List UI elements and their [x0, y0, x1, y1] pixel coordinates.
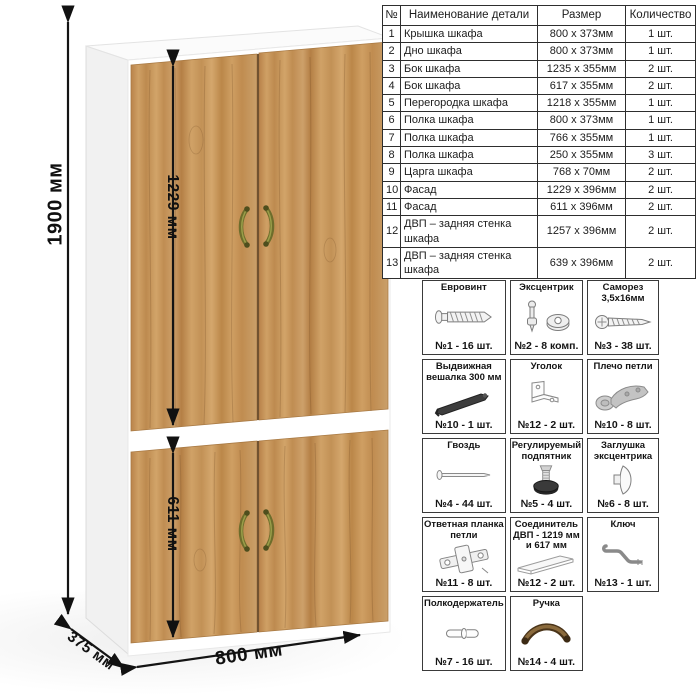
part-name: Перегородка шкафа [401, 95, 538, 112]
part-qty: 2 шт. [626, 164, 696, 181]
part-size: 250 х 355мм [538, 147, 626, 164]
hardware-item-title: Заглушка эксцентрика [589, 441, 657, 462]
door-lower-right [259, 430, 388, 632]
hardware-item: Ключ №13 - 1 шт. [587, 517, 659, 592]
cam-cover-icon [589, 462, 657, 498]
part-name: Полка шкафа [401, 147, 538, 164]
part-number: 1 [383, 25, 401, 42]
hardware-item-count: №6 - 8 шт. [597, 498, 649, 510]
part-name: Царга шкафа [401, 164, 538, 181]
part-qty: 1 шт. [626, 112, 696, 129]
part-size: 1257 х 396мм [538, 216, 626, 248]
part-size: 1229 х 396мм [538, 181, 626, 198]
dimension-upper-door-label: 1229 мм [163, 174, 181, 239]
table-row: 4 Бок шкафа 617 х 355мм 2 шт. [383, 77, 696, 94]
part-qty: 2 шт. [626, 216, 696, 248]
pull-out-hanger-icon [424, 383, 504, 419]
part-number: 13 [383, 247, 401, 279]
cam-lock-icon [512, 294, 581, 340]
part-number: 2 [383, 43, 401, 60]
table-row: 8 Полка шкафа 250 х 355мм 3 шт. [383, 147, 696, 164]
hardware-item-count: №7 - 16 шт. [435, 656, 492, 668]
part-qty: 1 шт. [626, 95, 696, 112]
hardware-item: Евровинт №1 - 16 шт. [422, 280, 506, 355]
table-row: 7 Полка шкафа 766 х 355мм 1 шт. [383, 129, 696, 146]
hardware-item-count: №1 - 16 шт. [435, 340, 492, 352]
hardware-item-title: Регулируемый подпятник [512, 441, 581, 462]
hardware-item: Уголок №12 - 2 шт. [510, 359, 583, 434]
part-name: Фасад [401, 198, 538, 215]
table-row: 12 ДВП – задняя стенка шкафа 1257 х 396м… [383, 216, 696, 248]
parts-table: № Наименование детали Размер Количество … [382, 5, 696, 279]
hardware-item: Регулируемый подпятник №5 - 4 шт. [510, 438, 583, 513]
hardware-item-title: Плечо петли [594, 362, 653, 373]
part-qty: 2 шт. [626, 60, 696, 77]
part-number: 9 [383, 164, 401, 181]
part-number: 11 [383, 198, 401, 215]
part-size: 766 х 355мм [538, 129, 626, 146]
wardrobe-illustration-area: 1900 мм 1229 мм 611 мм 800 мм 375 мм [0, 0, 420, 700]
hardware-grid: Евровинт №1 - 16 шт. Эксцентрик №2 - 8 к… [422, 280, 659, 671]
hardware-item: Плечо петли №10 - 8 шт. [587, 359, 659, 434]
hardware-item-count: №12 - 2 шт. [518, 577, 575, 589]
hardware-item: Полкодержатель №7 - 16 шт. [422, 596, 506, 671]
part-qty: 2 шт. [626, 181, 696, 198]
hex-key-icon [589, 531, 657, 577]
hardware-item-title: Соединитель ДВП - 1219 мм и 617 мм [512, 520, 581, 552]
part-name: Бок шкафа [401, 60, 538, 77]
hardware-item: Эксцентрик №2 - 8 комп. [510, 280, 583, 355]
hardware-item: Гвоздь №4 - 44 шт. [422, 438, 506, 513]
dimension-height-label: 1900 мм [45, 162, 68, 245]
hardware-item: Саморез 3,5х16мм №3 - 38 шт. [587, 280, 659, 355]
part-qty: 2 шт. [626, 247, 696, 279]
table-row: 1 Крышка шкафа 800 х 373мм 1 шт. [383, 25, 696, 42]
adjustable-foot-icon [512, 462, 581, 498]
part-number: 7 [383, 129, 401, 146]
part-qty: 2 шт. [626, 77, 696, 94]
wardrobe-illustration [0, 0, 420, 700]
part-name: Крышка шкафа [401, 25, 538, 42]
table-row: 6 Полка шкафа 800 х 373мм 1 шт. [383, 112, 696, 129]
col-header-name: Наименование детали [401, 6, 538, 26]
hardware-item: Ответная планка петли №11 - 8 шт. [422, 517, 506, 592]
part-name: ДВП – задняя стенка шкафа [401, 247, 538, 279]
hardware-item-count: №10 - 8 шт. [594, 419, 651, 431]
part-number: 8 [383, 147, 401, 164]
part-size: 611 х 396мм [538, 198, 626, 215]
table-row: 3 Бок шкафа 1235 х 355мм 2 шт. [383, 60, 696, 77]
table-row: 13 ДВП – задняя стенка шкафа 639 х 396мм… [383, 247, 696, 279]
door-upper-right [259, 42, 388, 420]
col-header-number: № [383, 6, 401, 26]
parts-table-header-row: № Наименование детали Размер Количество [383, 6, 696, 26]
part-qty: 1 шт. [626, 43, 696, 60]
part-qty: 2 шт. [626, 198, 696, 215]
hardware-item-count: №13 - 1 шт. [594, 577, 651, 589]
part-size: 1218 х 355мм [538, 95, 626, 112]
part-name: Полка шкафа [401, 129, 538, 146]
hinge-arm-icon [589, 373, 657, 419]
hdf-connector-icon [512, 552, 581, 577]
hardware-item-title: Ответная планка петли [424, 520, 504, 541]
hardware-item-count: №11 - 8 шт. [435, 577, 492, 589]
hardware-item-count: №12 - 2 шт. [518, 419, 575, 431]
part-number: 12 [383, 216, 401, 248]
table-row: 10 Фасад 1229 х 396мм 2 шт. [383, 181, 696, 198]
part-number: 6 [383, 112, 401, 129]
part-number: 3 [383, 60, 401, 77]
cabinet-left-side [86, 46, 128, 654]
hardware-item-title: Евровинт [441, 283, 487, 294]
hardware-item-title: Ключ [610, 520, 635, 531]
part-size: 800 х 373мм [538, 112, 626, 129]
hardware-item-count: №2 - 8 комп. [514, 340, 578, 352]
part-number: 5 [383, 95, 401, 112]
hardware-item-count: №10 - 1 шт. [435, 419, 492, 431]
self-tapping-screw-icon [589, 304, 657, 340]
shelf-pin-icon [424, 610, 504, 656]
part-name: ДВП – задняя стенка шкафа [401, 216, 538, 248]
table-row: 5 Перегородка шкафа 1218 х 355мм 1 шт. [383, 95, 696, 112]
hardware-item-count: №3 - 38 шт. [594, 340, 651, 352]
part-size: 800 х 373мм [538, 43, 626, 60]
hardware-item-title: Выдвижная вешалка 300 мм [424, 362, 504, 383]
corner-bracket-icon [512, 373, 581, 419]
furniture-assembly-sheet: { "dimensions": { "height": "1900 мм", "… [0, 0, 700, 700]
part-size: 1235 х 355мм [538, 60, 626, 77]
nail-icon [424, 452, 504, 498]
dimension-lower-door-label: 611 мм [163, 496, 181, 551]
part-qty: 1 шт. [626, 25, 696, 42]
hardware-item-count: №5 - 4 шт. [521, 498, 573, 510]
part-qty: 1 шт. [626, 129, 696, 146]
hardware-item: Выдвижная вешалка 300 мм №10 - 1 шт. [422, 359, 506, 434]
hardware-item-count: №4 - 44 шт. [435, 498, 492, 510]
part-size: 768 х 70мм [538, 164, 626, 181]
table-row: 2 Дно шкафа 800 х 373мм 1 шт. [383, 43, 696, 60]
hardware-item: Ручка №14 - 4 шт. [510, 596, 583, 671]
part-name: Бок шкафа [401, 77, 538, 94]
hardware-item: Заглушка эксцентрика №6 - 8 шт. [587, 438, 659, 513]
hardware-item-title: Саморез 3,5х16мм [589, 283, 657, 304]
hardware-item: Соединитель ДВП - 1219 мм и 617 мм №12 -… [510, 517, 583, 592]
part-name: Полка шкафа [401, 112, 538, 129]
table-row: 11 Фасад 611 х 396мм 2 шт. [383, 198, 696, 215]
hardware-item-title: Ручка [533, 599, 560, 610]
part-size: 617 х 355мм [538, 77, 626, 94]
part-qty: 3 шт. [626, 147, 696, 164]
part-name: Фасад [401, 181, 538, 198]
part-number: 10 [383, 181, 401, 198]
col-header-size: Размер [538, 6, 626, 26]
euro-screw-icon [424, 294, 504, 340]
hardware-item-title: Полкодержатель [424, 599, 504, 610]
handle-icon [512, 610, 581, 656]
part-size: 639 х 396мм [538, 247, 626, 279]
hardware-item-title: Эксцентрик [519, 283, 574, 294]
table-row: 9 Царга шкафа 768 х 70мм 2 шт. [383, 164, 696, 181]
part-name: Дно шкафа [401, 43, 538, 60]
hinge-plate-icon [424, 541, 504, 577]
hardware-item-title: Уголок [531, 362, 562, 373]
hardware-item-title: Гвоздь [447, 441, 480, 452]
part-number: 4 [383, 77, 401, 94]
hardware-item-count: №14 - 4 шт. [518, 656, 575, 668]
col-header-qty: Количество [626, 6, 696, 26]
part-size: 800 х 373мм [538, 25, 626, 42]
